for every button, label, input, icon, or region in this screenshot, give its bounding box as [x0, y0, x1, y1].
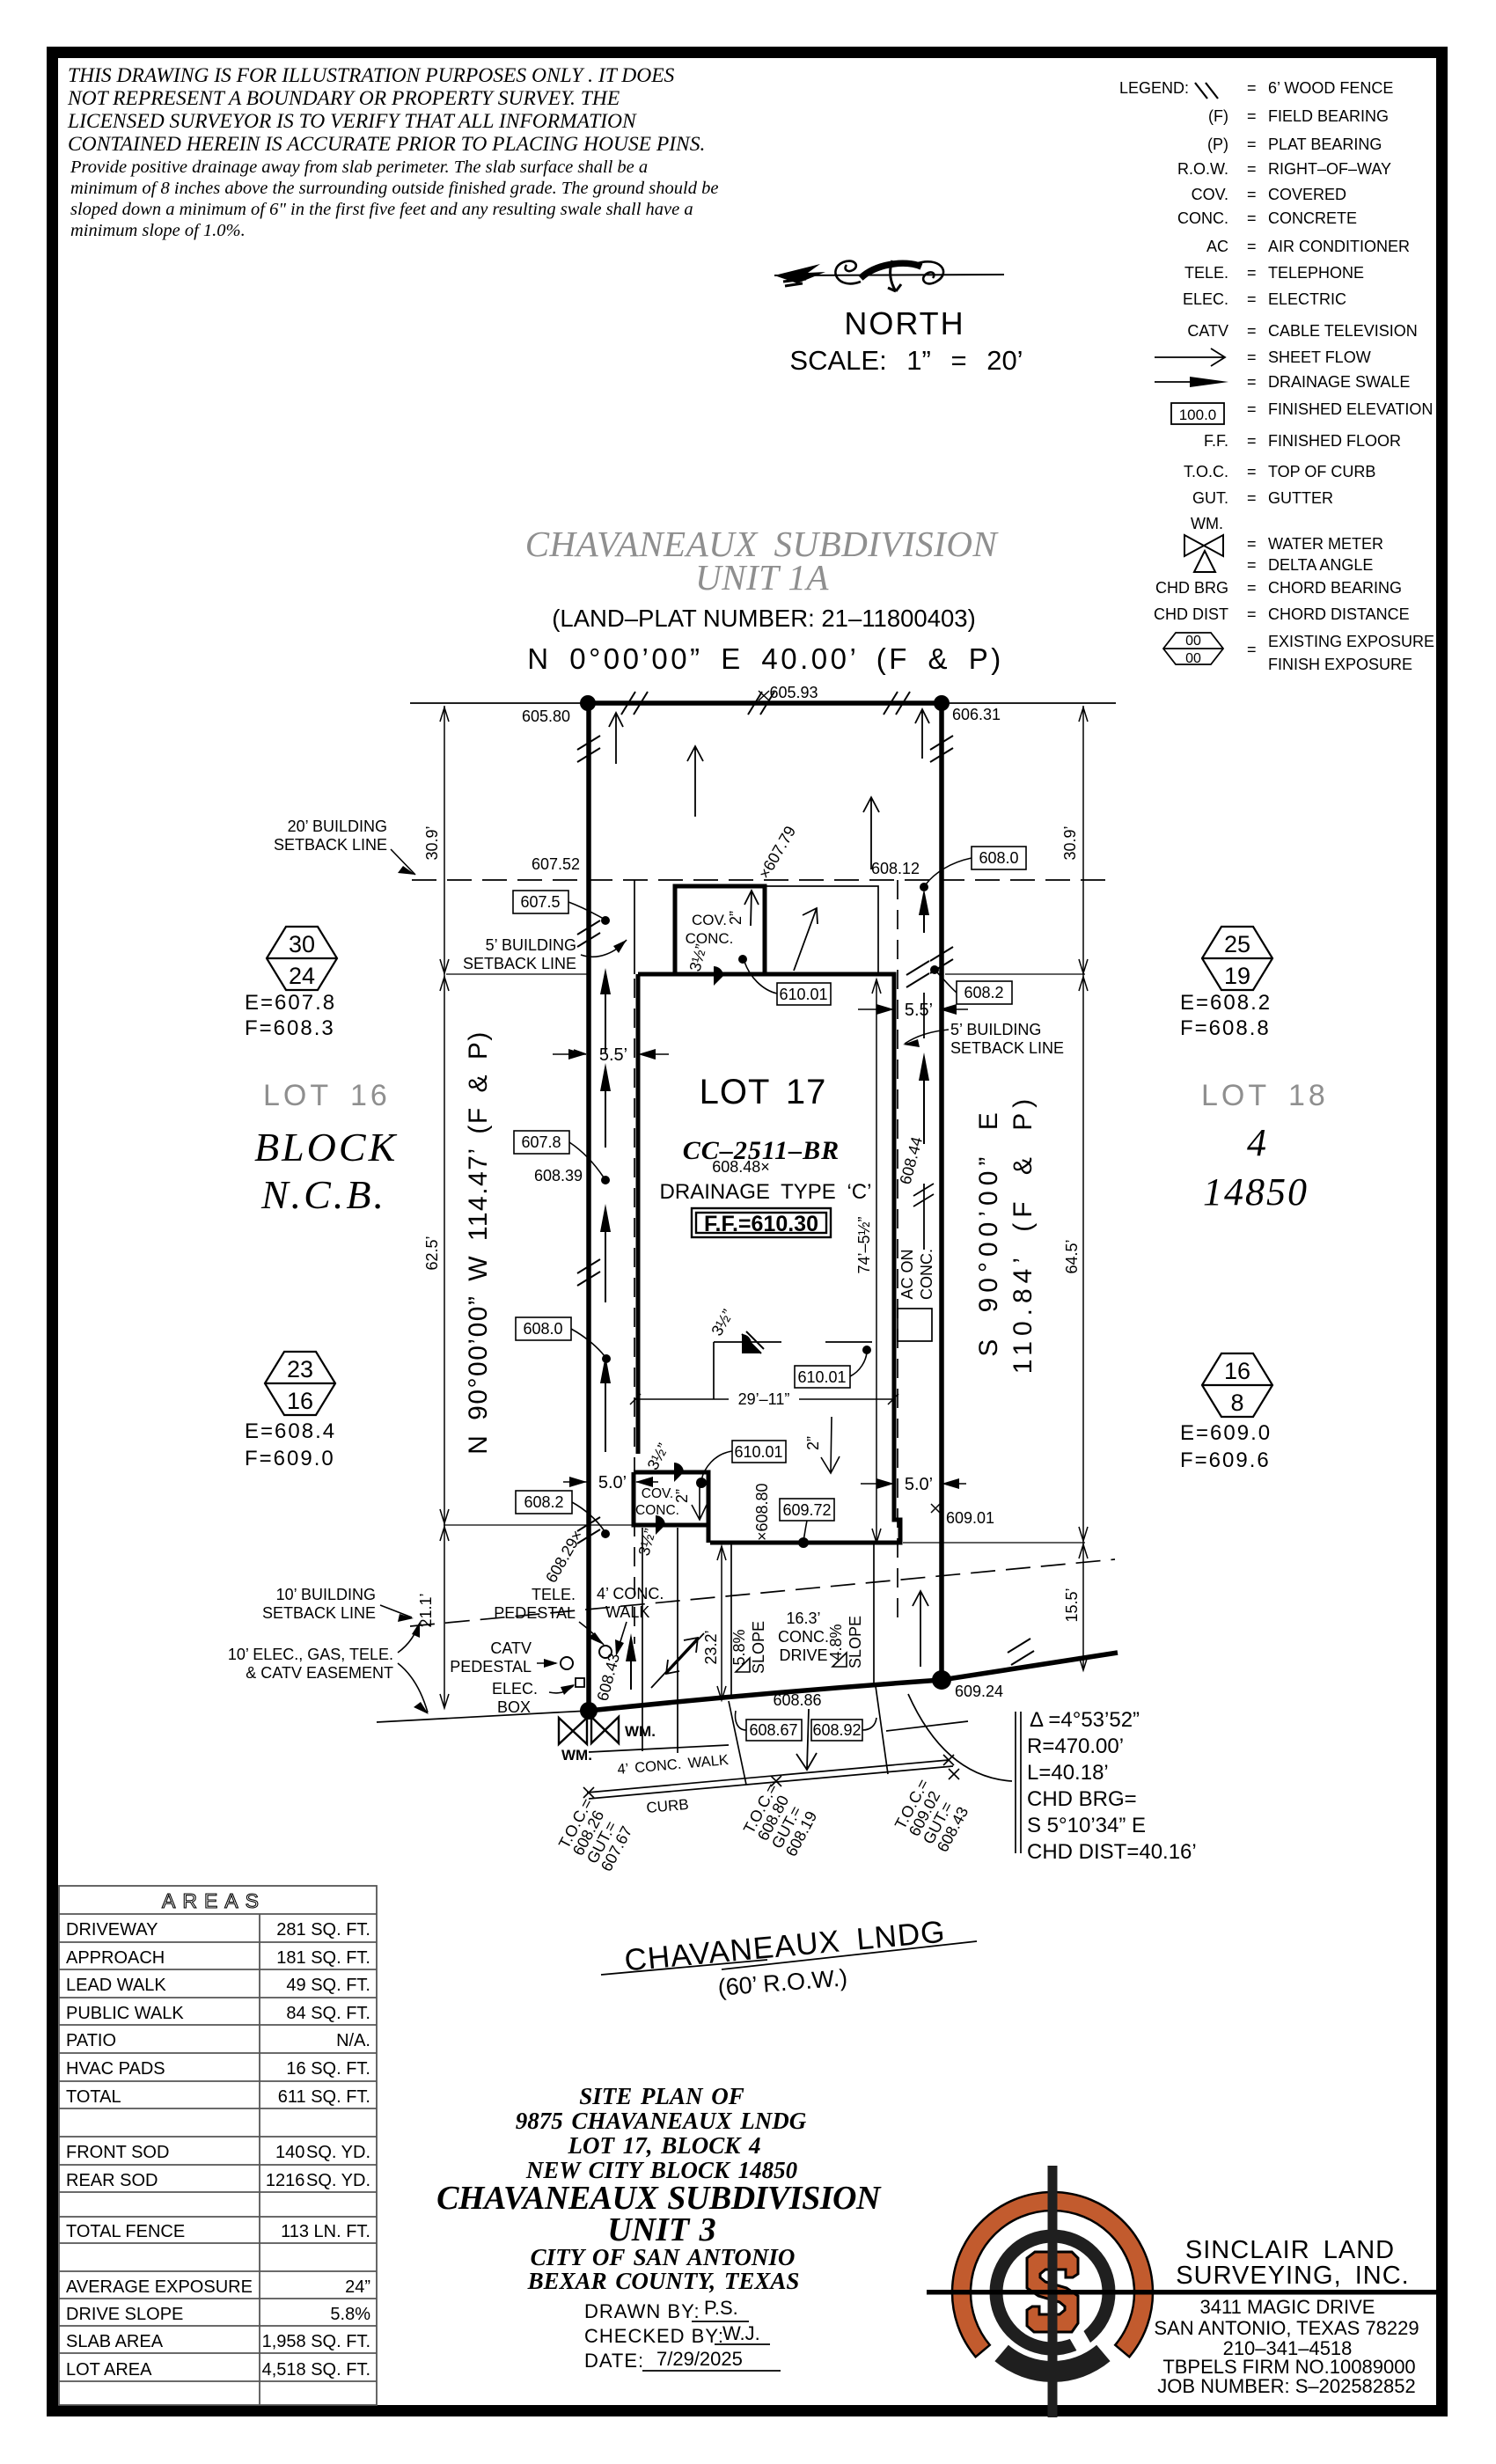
svg-text:COV.: COV.	[692, 912, 727, 928]
svg-text:CATV: CATV	[490, 1639, 532, 1657]
svg-text:DRIVE SLOPE: DRIVE SLOPE	[66, 2305, 183, 2324]
svg-text:=: =	[1247, 579, 1257, 597]
svg-text:606.31: 606.31	[952, 706, 1001, 723]
svg-text:DRIVE: DRIVE	[779, 1646, 827, 1664]
svg-text:10’ BUILDING: 10’ BUILDING	[276, 1586, 376, 1603]
svg-text:608.67: 608.67	[749, 1721, 797, 1739]
svg-text:WATER METER: WATER METER	[1268, 535, 1383, 553]
svg-text:=: =	[1247, 641, 1257, 658]
svg-text:608.12: 608.12	[871, 860, 920, 877]
svg-text:ELEC.: ELEC.	[492, 1680, 538, 1698]
svg-text:TOP OF CURB: TOP OF CURB	[1268, 463, 1375, 480]
svg-text:00: 00	[1185, 634, 1201, 649]
svg-text:5.8%: 5.8%	[330, 2305, 370, 2324]
svg-text:=: =	[1247, 238, 1257, 255]
svg-text:24”: 24”	[345, 2277, 370, 2297]
svg-text:24: 24	[289, 963, 315, 989]
svg-text:F.F.=610.30: F.F.=610.30	[704, 1212, 818, 1236]
svg-text:CONC.: CONC.	[686, 930, 734, 947]
svg-text:SETBACK LINE: SETBACK LINE	[463, 955, 576, 972]
svg-text:PATIO: PATIO	[66, 2031, 116, 2050]
svg-text:8: 8	[1230, 1390, 1243, 1416]
svg-text:LOT 17, BLOCK 4: LOT 17, BLOCK 4	[567, 2132, 760, 2159]
svg-text:00: 00	[1185, 651, 1201, 666]
svg-text:30.9’: 30.9’	[423, 825, 441, 860]
svg-text:CONC.: CONC.	[918, 1249, 935, 1300]
svg-text:LOT 16: LOT 16	[263, 1079, 391, 1112]
svg-text:S 5°10’34” E: S 5°10’34” E	[1027, 1814, 1146, 1837]
svg-text:N 90°00’00” W 114.47’ (F & P): N 90°00’00” W 114.47’ (F & P)	[464, 1030, 493, 1455]
svg-text:608.0: 608.0	[979, 849, 1018, 867]
svg-text:CONC.: CONC.	[635, 1503, 679, 1518]
svg-text:CHECKED BY:: CHECKED BY:	[584, 2325, 724, 2347]
svg-text:SLOPE: SLOPE	[847, 1616, 864, 1668]
svg-text:N.C.B.: N.C.B.	[260, 1172, 386, 1217]
svg-text:10’ ELEC., GAS, TELE.: 10’ ELEC., GAS, TELE.	[228, 1646, 393, 1663]
svg-text:ELEC.: ELEC.	[1183, 290, 1228, 308]
svg-text:N/A.: N/A.	[336, 2031, 370, 2050]
svg-text:THIS DRAWING IS FOR ILLUSTRATI: THIS DRAWING IS FOR ILLUSTRATION PURPOSE…	[68, 64, 675, 87]
svg-text:AREAS: AREAS	[162, 1889, 266, 1912]
svg-text:4: 4	[1247, 1121, 1266, 1164]
svg-text:CABLE TELEVISION: CABLE TELEVISION	[1268, 322, 1418, 340]
svg-text:DRAINAGE TYPE ‘C’: DRAINAGE TYPE ‘C’	[660, 1180, 872, 1204]
svg-text:SLOPE: SLOPE	[750, 1621, 767, 1674]
svg-text:F=608.3: F=608.3	[245, 1016, 335, 1040]
svg-text:PEDESTAL: PEDESTAL	[494, 1604, 576, 1622]
svg-text:TOTAL FENCE: TOTAL FENCE	[66, 2222, 185, 2241]
svg-text:16: 16	[1224, 1358, 1250, 1384]
svg-text:PLAT BEARING: PLAT BEARING	[1268, 136, 1382, 153]
svg-text:608.39: 608.39	[534, 1167, 583, 1184]
svg-text:610.01: 610.01	[797, 1368, 846, 1386]
svg-text:19: 19	[1224, 963, 1250, 989]
svg-text:F=609.6: F=609.6	[1180, 1448, 1271, 1472]
svg-text:74’–5½”: 74’–5½”	[855, 1216, 873, 1273]
svg-text:Provide positive drainage away: Provide positive drainage away from slab…	[70, 158, 648, 177]
svg-text:AC ON: AC ON	[898, 1249, 916, 1299]
svg-text:LOT 17: LOT 17	[700, 1073, 827, 1111]
svg-text:=: =	[1247, 136, 1257, 153]
svg-text:6’ WOOD FENCE: 6’ WOOD FENCE	[1268, 79, 1393, 97]
svg-text:R.O.W.: R.O.W.	[1177, 160, 1228, 178]
svg-text:TOTAL: TOTAL	[66, 2087, 121, 2107]
svg-text:minimum of 8 inches above the: minimum of 8 inches above the surroundin…	[70, 179, 718, 198]
svg-text:SHEET FLOW: SHEET FLOW	[1268, 348, 1371, 366]
svg-text:F.F.: F.F.	[1204, 432, 1228, 450]
svg-text:3411 MAGIC DRIVE: 3411 MAGIC DRIVE	[1200, 2296, 1375, 2318]
svg-text:=: =	[1247, 535, 1257, 553]
svg-text:=: =	[1247, 160, 1257, 178]
svg-text:64.5’: 64.5’	[1063, 1239, 1081, 1273]
svg-text:EXISTING EXPOSURE: EXISTING EXPOSURE	[1268, 633, 1434, 650]
svg-text:5’ BUILDING: 5’ BUILDING	[950, 1021, 1041, 1038]
svg-text:607.8: 607.8	[521, 1133, 561, 1151]
svg-text:SITE PLAN OF: SITE PLAN OF	[579, 2083, 744, 2109]
svg-text:NOT REPRESENT A BOUNDARY OR PR: NOT REPRESENT A BOUNDARY OR PROPERTY SUR…	[67, 87, 620, 110]
svg-text:608.92: 608.92	[812, 1721, 861, 1739]
svg-text:15.5’: 15.5’	[1063, 1588, 1081, 1622]
svg-text:113 LN. FT.: 113 LN. FT.	[281, 2222, 370, 2241]
svg-text:9875 CHAVANEAUX LNDG: 9875 CHAVANEAUX LNDG	[516, 2108, 807, 2134]
svg-text:F=609.0: F=609.0	[245, 1447, 335, 1470]
svg-text:609.24: 609.24	[955, 1683, 1003, 1700]
svg-text:WM.: WM.	[625, 1723, 656, 1740]
svg-text:REAR SOD: REAR SOD	[66, 2171, 158, 2190]
svg-text:HVAC PADS: HVAC PADS	[66, 2059, 165, 2079]
svg-text:(F): (F)	[1208, 107, 1228, 125]
svg-text:25: 25	[1224, 931, 1250, 957]
svg-text:23: 23	[287, 1356, 313, 1382]
svg-text:29’–11”: 29’–11”	[738, 1390, 790, 1408]
svg-text:62.5’: 62.5’	[423, 1236, 441, 1270]
svg-text:7/29/2025: 7/29/2025	[656, 2348, 743, 2370]
svg-text:AIR CONDITIONER: AIR CONDITIONER	[1268, 238, 1410, 255]
svg-text:16.3’: 16.3’	[786, 1610, 820, 1627]
svg-text:LICENSED SURVEYOR IS TO VERIFY: LICENSED SURVEYOR IS TO VERIFY THAT ALL …	[67, 110, 637, 133]
svg-text:COVERED: COVERED	[1268, 186, 1346, 203]
svg-text:N 0°00’00” E 40.00’ (F & P): N 0°00’00” E 40.00’ (F & P)	[527, 642, 1003, 675]
svg-text:DRIVEWAY: DRIVEWAY	[66, 1920, 158, 1940]
svg-text:GUT.: GUT.	[1192, 489, 1228, 507]
svg-text:609.72: 609.72	[782, 1501, 831, 1519]
svg-text:20’ BUILDING: 20’ BUILDING	[288, 818, 387, 835]
svg-text:sloped down a minimum of 6" in: sloped down a minimum of 6" in the first…	[70, 200, 693, 219]
svg-text:CONCRETE: CONCRETE	[1268, 209, 1357, 227]
svg-text:FINISHED FLOOR: FINISHED FLOOR	[1268, 432, 1401, 450]
svg-text:=: =	[1247, 463, 1257, 480]
svg-text:CC–2511–BR: CC–2511–BR	[683, 1136, 840, 1165]
svg-text:=: =	[1247, 489, 1257, 507]
svg-text:F=608.8: F=608.8	[1180, 1016, 1271, 1040]
svg-text:=: =	[1247, 322, 1257, 340]
svg-text:=: =	[1247, 348, 1257, 366]
svg-text:L=40.18’: L=40.18’	[1027, 1761, 1109, 1785]
svg-text:84 SQ. FT.: 84 SQ. FT.	[286, 2004, 370, 2023]
svg-text:281 SQ. FT.: 281 SQ. FT.	[276, 1920, 370, 1940]
svg-text:LEAD WALK: LEAD WALK	[66, 1976, 166, 1995]
svg-text:WM.: WM.	[1191, 515, 1223, 532]
svg-text:CHD DIST=40.16’: CHD DIST=40.16’	[1027, 1840, 1197, 1864]
svg-text:W.J.: W.J.	[722, 2322, 760, 2344]
svg-text:SETBACK LINE: SETBACK LINE	[950, 1039, 1064, 1057]
svg-text:(P): (P)	[1207, 136, 1228, 153]
svg-text:SCALE: 1” = 20’: SCALE: 1” = 20’	[789, 345, 1023, 376]
svg-text:2”: 2”	[727, 911, 744, 925]
svg-text:FINISH EXPOSURE: FINISH EXPOSURE	[1268, 656, 1412, 673]
svg-text:608.86: 608.86	[773, 1691, 821, 1709]
svg-text:WM.: WM.	[561, 1747, 592, 1764]
svg-text:T.O.C.: T.O.C.	[1184, 463, 1228, 480]
svg-text:E=608.2: E=608.2	[1180, 991, 1272, 1015]
svg-text:2”: 2”	[673, 1489, 691, 1503]
svg-text:COV.: COV.	[642, 1486, 673, 1501]
svg-text:21.1’: 21.1’	[417, 1593, 435, 1627]
svg-text:=: =	[1247, 556, 1257, 574]
svg-text:=: =	[1247, 209, 1257, 227]
svg-text:5.0’: 5.0’	[905, 1475, 933, 1494]
svg-text:CONTAINED HEREIN IS ACCURATE P: CONTAINED HEREIN IS ACCURATE PRIOR TO PL…	[68, 133, 705, 156]
svg-text:30: 30	[289, 931, 315, 957]
svg-text:LEGEND:: LEGEND:	[1119, 79, 1189, 97]
svg-text:TELE.: TELE.	[1184, 264, 1228, 282]
svg-text:S 90°00’00” E: S 90°00’00” E	[974, 1107, 1003, 1356]
svg-text:SAN ANTONIO, TEXAS 78229: SAN ANTONIO, TEXAS 78229	[1154, 2317, 1419, 2339]
svg-text:110.84’ (F & P): 110.84’ (F & P)	[1008, 1094, 1038, 1374]
svg-text:2”: 2”	[804, 1436, 822, 1450]
svg-text:WALK: WALK	[605, 1603, 649, 1621]
svg-text:=: =	[1247, 432, 1257, 450]
svg-text:& CATV EASEMENT: & CATV EASEMENT	[246, 1664, 393, 1682]
svg-text:E=608.4: E=608.4	[245, 1419, 336, 1443]
svg-text:1216 SQ. YD.: 1216 SQ. YD.	[266, 2171, 370, 2190]
svg-text:140 SQ. YD.: 140 SQ. YD.	[275, 2143, 370, 2162]
svg-text:CHD DIST: CHD DIST	[1154, 605, 1228, 623]
svg-text:DRAWN BY:: DRAWN BY:	[584, 2300, 700, 2322]
svg-text:5.5’: 5.5’	[599, 1045, 627, 1065]
svg-text:5.5’: 5.5’	[905, 1001, 933, 1020]
svg-text:608.0: 608.0	[523, 1320, 562, 1338]
svg-text:608.2: 608.2	[964, 984, 1003, 1001]
svg-text:(LAND–PLAT NUMBER: 21–11800403: (LAND–PLAT NUMBER: 21–11800403)	[552, 605, 976, 632]
svg-text:23.2’: 23.2’	[702, 1630, 720, 1664]
svg-text:16: 16	[287, 1388, 313, 1414]
svg-text:SLAB AREA: SLAB AREA	[66, 2332, 164, 2351]
svg-text:610.01: 610.01	[779, 986, 827, 1003]
svg-text:FIELD BEARING: FIELD BEARING	[1268, 107, 1389, 125]
svg-text:Δ =4°53’52”: Δ =4°53’52”	[1030, 1708, 1140, 1732]
svg-text:16 SQ. FT.: 16 SQ. FT.	[286, 2059, 370, 2079]
svg-text:14850: 14850	[1203, 1170, 1309, 1214]
svg-text:CONC.: CONC.	[1177, 209, 1228, 227]
svg-text:R=470.00’: R=470.00’	[1027, 1734, 1124, 1758]
svg-text:TELE.: TELE.	[532, 1586, 576, 1603]
svg-text:CHD BRG: CHD BRG	[1155, 579, 1228, 597]
svg-text:ELECTRIC: ELECTRIC	[1268, 290, 1346, 308]
svg-text:5.0’: 5.0’	[598, 1473, 627, 1492]
svg-text:UNIT 1A: UNIT 1A	[695, 557, 829, 598]
svg-text:=: =	[1247, 264, 1257, 282]
svg-text:181 SQ. FT.: 181 SQ. FT.	[276, 1948, 370, 1968]
svg-text:611 SQ. FT.: 611 SQ. FT.	[278, 2087, 370, 2107]
svg-text:SURVEYING, INC.: SURVEYING, INC.	[1176, 2262, 1409, 2290]
svg-text:BOX: BOX	[497, 1698, 531, 1716]
svg-text:GUTTER: GUTTER	[1268, 489, 1333, 507]
svg-text:4’ CONC.: 4’ CONC.	[597, 1585, 664, 1602]
svg-text:E=607.8: E=607.8	[245, 991, 336, 1015]
svg-text:BEXAR COUNTY, TEXAS: BEXAR COUNTY, TEXAS	[527, 2268, 800, 2294]
svg-text:BLOCK: BLOCK	[254, 1125, 398, 1170]
svg-text:AC: AC	[1206, 238, 1228, 255]
svg-text:=: =	[1247, 290, 1257, 308]
svg-text:=: =	[1247, 605, 1257, 623]
svg-text:607.5: 607.5	[520, 893, 560, 911]
svg-text:minimum slope of 1.0%.: minimum slope of 1.0%.	[70, 221, 246, 240]
svg-text:PUBLIC WALK: PUBLIC WALK	[66, 2004, 184, 2023]
svg-text:100.0: 100.0	[1179, 407, 1217, 423]
svg-text:4,518 SQ. FT.: 4,518 SQ. FT.	[262, 2360, 370, 2380]
svg-text:605.80: 605.80	[522, 708, 570, 725]
svg-text:1,958 SQ. FT.: 1,958 SQ. FT.	[262, 2332, 370, 2351]
svg-text:AVERAGE EXPOSURE: AVERAGE EXPOSURE	[66, 2277, 253, 2297]
svg-text:SETBACK LINE: SETBACK LINE	[274, 836, 387, 854]
svg-text:605.93: 605.93	[769, 684, 818, 701]
svg-text:610.01: 610.01	[734, 1443, 782, 1461]
svg-text:DATE:: DATE:	[584, 2350, 644, 2372]
svg-text:RIGHT–OF–WAY: RIGHT–OF–WAY	[1268, 160, 1391, 178]
svg-text:5.8%: 5.8%	[730, 1629, 748, 1665]
svg-text:CATV: CATV	[1187, 322, 1228, 340]
svg-text:PEDESTAL: PEDESTAL	[450, 1658, 532, 1676]
svg-text:JOB NUMBER: S–202582852: JOB NUMBER: S–202582852	[1157, 2375, 1416, 2397]
svg-text:=: =	[1247, 107, 1257, 125]
svg-text:CONC.: CONC.	[778, 1628, 829, 1646]
svg-text:609.01: 609.01	[946, 1509, 994, 1527]
svg-text:4.8%: 4.8%	[827, 1624, 845, 1660]
svg-text:FINISHED ELEVATION: FINISHED ELEVATION	[1268, 400, 1433, 418]
svg-text:607.52: 607.52	[532, 855, 580, 873]
svg-text:DELTA ANGLE: DELTA ANGLE	[1268, 556, 1373, 574]
svg-text:CITY OF SAN ANTONIO: CITY OF SAN ANTONIO	[531, 2244, 796, 2270]
svg-text:49 SQ. FT.: 49 SQ. FT.	[286, 1976, 370, 1995]
svg-text:=: =	[1247, 186, 1257, 203]
svg-text:SINCLAIR LAND: SINCLAIR LAND	[1185, 2236, 1395, 2264]
svg-text:CHD BRG=: CHD BRG=	[1027, 1787, 1137, 1811]
svg-text:SETBACK LINE: SETBACK LINE	[262, 1604, 376, 1622]
svg-text:NORTH: NORTH	[844, 305, 964, 341]
svg-text:UNIT 3: UNIT 3	[607, 2211, 715, 2248]
svg-text:CHORD DISTANCE: CHORD DISTANCE	[1268, 605, 1410, 623]
svg-text:COV.: COV.	[1192, 186, 1228, 203]
svg-text:LOT 18: LOT 18	[1201, 1079, 1329, 1112]
svg-text:APPROACH: APPROACH	[66, 1948, 165, 1968]
svg-text:5’ BUILDING: 5’ BUILDING	[486, 936, 576, 954]
svg-text:LOT AREA: LOT AREA	[66, 2360, 152, 2380]
svg-text:×608.80: ×608.80	[753, 1483, 771, 1541]
svg-text:=: =	[1247, 373, 1257, 391]
svg-text:=: =	[1247, 400, 1257, 418]
svg-text:608.2: 608.2	[524, 1493, 563, 1511]
svg-text:TELEPHONE: TELEPHONE	[1268, 264, 1364, 282]
svg-text:CHORD BEARING: CHORD BEARING	[1268, 579, 1402, 597]
svg-text:DRAINAGE SWALE: DRAINAGE SWALE	[1268, 373, 1410, 391]
svg-text:E=609.0: E=609.0	[1180, 1421, 1272, 1445]
svg-text:FRONT SOD: FRONT SOD	[66, 2143, 169, 2162]
svg-text:30.9’: 30.9’	[1061, 825, 1079, 860]
svg-text:P.S.: P.S.	[704, 2297, 738, 2319]
svg-text:=: =	[1247, 79, 1257, 97]
